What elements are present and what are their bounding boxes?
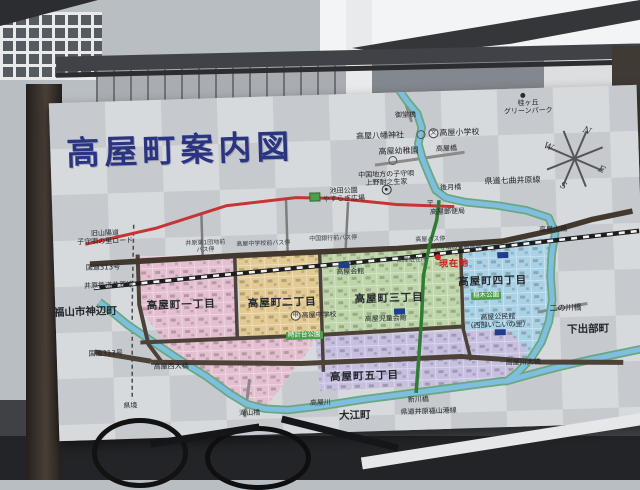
map-label: 高屋町四丁目 (458, 274, 527, 289)
map-label: 御堂橋 (395, 111, 416, 120)
childrens-hall-building (394, 308, 405, 314)
map-label: 旧山陽道 子守唄の里ロード (77, 228, 133, 247)
map-label: 県道井原福山港線 (401, 406, 457, 416)
map-label: 後月橋 (440, 183, 461, 192)
map-label: 高屋郵便局 (430, 207, 465, 216)
road-branch-3 (344, 202, 350, 250)
map-label: 中国銀行前バス停 (309, 234, 357, 243)
map-label: 高屋町一丁目 (147, 298, 216, 313)
map-label: 高屋八幡神社 (356, 130, 404, 141)
district-高屋町二丁目 (238, 251, 321, 337)
map-label: 県境 (123, 401, 137, 410)
ikeda-park-symbol (309, 192, 320, 201)
map-symbol: 文 (428, 128, 438, 138)
map-label: 福山市神辺町 (54, 305, 117, 320)
map-label: 国道313号 (86, 263, 121, 272)
map-label: 中高屋中学校 (290, 309, 336, 320)
map-label: 子守唄の里高屋駅 (433, 243, 481, 252)
map-label: 高屋町三丁目 (354, 291, 423, 306)
compass-w: W (542, 141, 554, 154)
map-label: 稲木公園 (471, 291, 501, 300)
map-label: 高屋駐在所 (397, 256, 427, 264)
map-label: 時計台公園 (286, 331, 323, 340)
takaya-station-building (497, 252, 508, 258)
map-label: 滝山橋 (239, 409, 260, 418)
map-label: 高屋川 (310, 398, 331, 407)
sign-title: 高屋町案内図 (66, 120, 295, 175)
post-office-symbol: 〒 (426, 198, 434, 209)
map-label: 井原第1団地前 バス停 (185, 239, 225, 255)
map-label: 高屋川大橋 (506, 358, 541, 367)
map-label: 高屋大橋 (539, 225, 567, 234)
map-label: 高屋児童会館 (365, 314, 407, 324)
takaya-hall-building (338, 262, 349, 268)
community-center-building (495, 329, 506, 335)
map-label: 新川橋 (408, 395, 429, 404)
map-label: 国道313号 (88, 349, 123, 358)
town-map-sign: 御堂橋桂ヶ丘 グリーンパーク高屋八幡神社文高屋小学校高屋幼稚園高屋橋中国地方の子… (49, 85, 640, 441)
map-label: 高屋公民館 （西部いこいの里） (466, 312, 529, 331)
road-old-sanyodo (84, 193, 455, 245)
map-symbol: 中 (290, 311, 300, 321)
ground-shadow (0, 436, 640, 480)
map-label: 高屋会館 (336, 267, 364, 276)
map-label: 下出部町 (567, 323, 609, 337)
map-label: 桂ヶ丘 グリーンパーク (504, 98, 553, 116)
map-label: 井原鉄道井原線 (84, 281, 133, 291)
map-label: 文高屋小学校 (428, 127, 479, 139)
map-label: 高屋町五丁目 (330, 369, 399, 384)
map-label: 高屋町二丁目 (248, 296, 317, 311)
map-label: 高屋西大橋 (154, 362, 189, 371)
map-label: 大江町 (339, 409, 371, 423)
map-label: 現在地 (439, 259, 469, 271)
pref-border-line (127, 225, 139, 400)
map-label: 高屋幼稚園 (378, 146, 418, 157)
map-label: 高屋橋 (436, 144, 457, 153)
map-label: 県道七曲井原線 (484, 175, 540, 186)
map-label: 二の川橋 (549, 303, 581, 314)
map-label: 池田公園 やすらぎ広場 (323, 186, 366, 204)
map-label: 高屋バス停 (415, 235, 445, 243)
